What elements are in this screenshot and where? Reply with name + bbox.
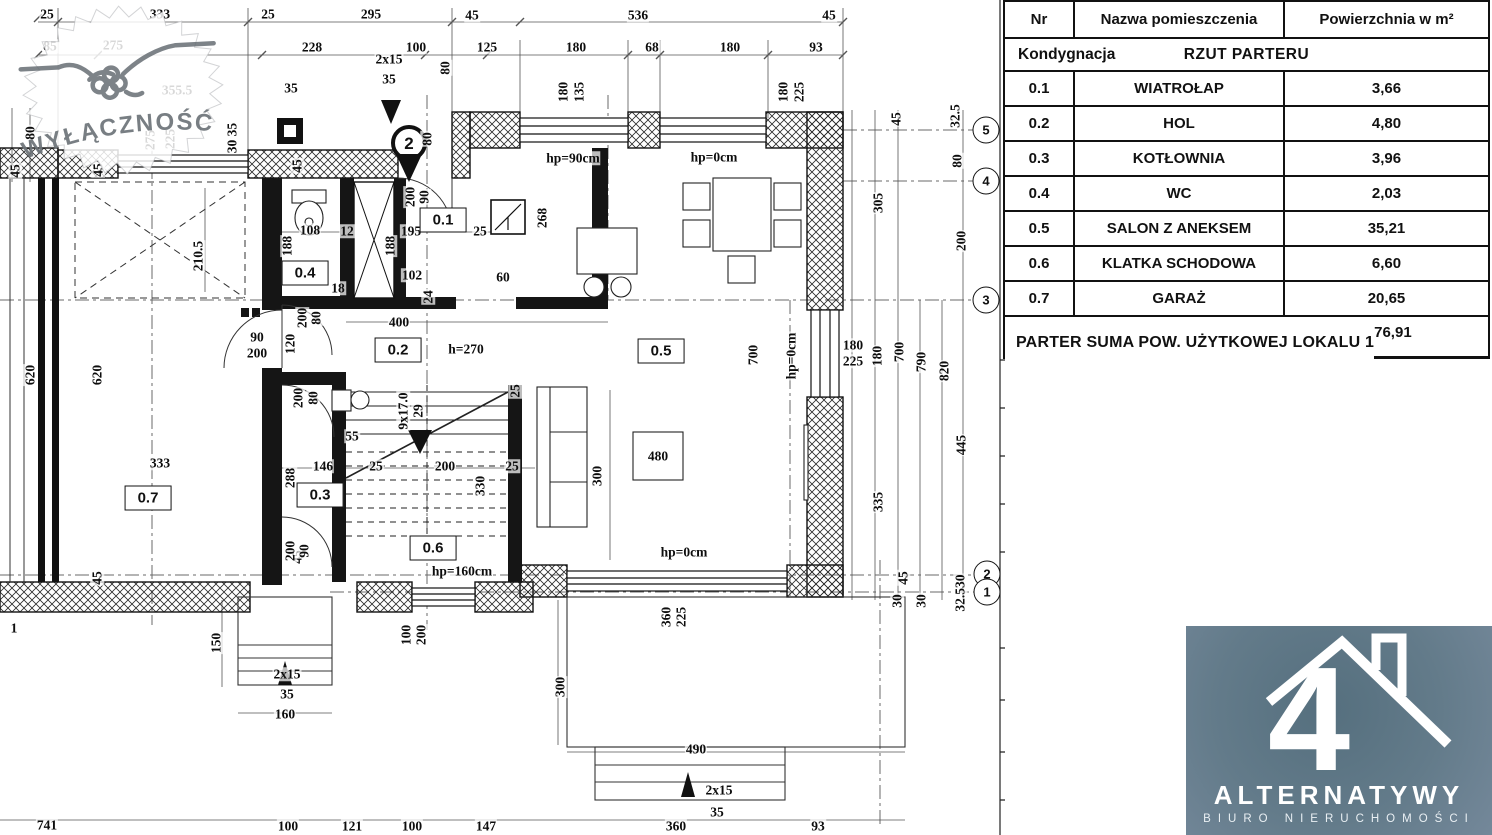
dimension-label: hp=0cm xyxy=(690,150,739,164)
dimension-label: 93 xyxy=(808,40,824,54)
dimension-label: 90 xyxy=(297,543,311,559)
dimension-label: 305 xyxy=(871,192,885,214)
logo-graphic: 4 xyxy=(1214,630,1464,782)
dimension-label: 333 xyxy=(149,456,171,470)
dimension-label: 295 xyxy=(360,7,382,21)
table-row: 0.1WIATROŁAP3,66 xyxy=(1005,72,1488,107)
sofa xyxy=(537,387,587,527)
dimension-label: 100 xyxy=(399,624,413,646)
dimension-label: 300 xyxy=(590,465,604,487)
dimension-label: 146 xyxy=(312,459,334,473)
dimension-label: 620 xyxy=(23,364,37,386)
dimension-label: 228 xyxy=(301,40,323,54)
dimension-label: 355.5 xyxy=(161,83,193,97)
dimension-label: 180 xyxy=(565,40,587,54)
dimension-label: 25 xyxy=(504,459,520,473)
cell-nr: 0.3 xyxy=(1005,142,1073,175)
dimension-label: 45 xyxy=(290,158,304,174)
dimension-label: 400 xyxy=(388,315,410,329)
dimension-label: 150 xyxy=(209,632,223,654)
brand-name: ALTERNATYWY xyxy=(1214,782,1464,809)
col-name: Nazwa pomieszczenia xyxy=(1073,2,1283,37)
dimension-label: 180 xyxy=(776,81,790,103)
storey-row: Kondygnacja RZUT PARTERU xyxy=(1005,39,1488,72)
dimension-label: 120 xyxy=(283,333,297,355)
dimension-label: 25 xyxy=(508,383,522,399)
grid-marker-1: 1 xyxy=(974,579,1001,606)
room-label-0.3: 0.3 xyxy=(297,483,344,508)
dimension-label: 93 xyxy=(810,819,826,833)
dimension-label: 45 xyxy=(889,111,903,127)
dimension-label: 300 xyxy=(553,676,567,698)
cell-nr: 0.2 xyxy=(1005,107,1073,140)
cell-area: 2,03 xyxy=(1283,177,1488,210)
dimension-label: 135 xyxy=(572,81,586,103)
dimension-label: 700 xyxy=(892,341,906,363)
garage-door-zone xyxy=(75,182,245,298)
room-area-table: Nr Nazwa pomieszczenia Powierzchnia w m²… xyxy=(1003,0,1490,359)
dimension-label: 700 xyxy=(746,344,760,366)
dimension-label: 108 xyxy=(299,223,321,237)
dimension-label: 80 xyxy=(23,125,37,141)
dimension-label: 100 xyxy=(277,819,299,833)
cell-area: 3,66 xyxy=(1283,72,1488,105)
dimension-label: 12 xyxy=(339,224,355,238)
dimension-label: 210.5 xyxy=(191,240,205,272)
dimension-label: 2x15 xyxy=(375,52,404,66)
dimension-label: 2x15 xyxy=(705,783,734,797)
dimension-label: 225 xyxy=(842,354,864,368)
dimension-label: 180 xyxy=(556,81,570,103)
dimension-label: 30 xyxy=(914,593,928,609)
dimension-label: hp=160cm xyxy=(431,564,493,578)
room-label-0.7: 0.7 xyxy=(125,486,172,511)
pin-number: 2 xyxy=(404,134,413,153)
dimension-label: 35 xyxy=(283,81,299,95)
room-label-0.5: 0.5 xyxy=(638,339,685,364)
dimension-label: hp=90cm xyxy=(545,151,600,165)
cell-area: 20,65 xyxy=(1283,282,1488,315)
agency-logo: 4 ALTERNATYWY BIURO NIERUCHOMOŚCI xyxy=(1186,626,1492,835)
dimension-label: 80 xyxy=(306,390,320,406)
dimension-label: 200 xyxy=(434,459,456,473)
dimension-label: 200 xyxy=(283,540,297,562)
dimension-label: 200 xyxy=(414,624,428,646)
dimension-label: 30 35 xyxy=(225,122,239,154)
col-nr: Nr xyxy=(1005,2,1073,37)
kitchen-island xyxy=(577,228,637,274)
dimension-label: 25 xyxy=(39,7,55,21)
dimension-label: 85 xyxy=(42,39,58,53)
cell-nr: 0.7 xyxy=(1005,282,1073,315)
dimension-label: 180 xyxy=(719,40,741,54)
cell-nr: 0.6 xyxy=(1005,247,1073,280)
dimension-label: 288 xyxy=(283,467,297,489)
dimension-label: 480 xyxy=(647,449,669,463)
dimension-label: 333 xyxy=(149,7,171,21)
dimension-label: 25 xyxy=(260,7,276,21)
grid-marker-5: 5 xyxy=(973,117,1000,144)
dimension-label: 55 xyxy=(344,429,360,443)
cell-name: WIATROŁAP xyxy=(1073,72,1283,105)
dimension-label: hp=0cm xyxy=(784,332,798,381)
area-table-body: 0.1WIATROŁAP3,660.2HOL4,800.3KOTŁOWNIA3,… xyxy=(1005,72,1488,317)
cell-nr: 0.1 xyxy=(1005,72,1073,105)
dimension-label: 29 xyxy=(411,403,425,419)
cell-name: WC xyxy=(1073,177,1283,210)
cell-name: GARAŻ xyxy=(1073,282,1283,315)
dimension-label: 200 xyxy=(246,346,268,360)
table-row: 0.5SALON Z ANEKSEM35,21 xyxy=(1005,212,1488,247)
dimension-label: 180 xyxy=(870,345,884,367)
dimension-label: 160 xyxy=(274,707,296,721)
table-row: 0.4WC2,03 xyxy=(1005,177,1488,212)
washer-icon xyxy=(332,390,351,411)
cell-area: 35,21 xyxy=(1283,212,1488,245)
dimension-label: 790 xyxy=(914,351,928,373)
summary-row: PARTER SUMA POW. UŻYTKOWEJ LOKALU 1 76,9… xyxy=(1005,317,1488,359)
dimension-label: 275 xyxy=(102,38,124,52)
chimney-block xyxy=(277,118,303,144)
dimension-label: 200 xyxy=(295,307,309,329)
dimension-label: 68 xyxy=(644,40,660,54)
floor-plan-sheet: 2 25333252954553645852752281001251806818… xyxy=(0,0,1005,835)
dimension-label: 100 xyxy=(405,40,427,54)
room-label-0.2: 0.2 xyxy=(375,338,422,363)
dimension-label: 147 xyxy=(475,819,497,833)
dimension-label: 45 xyxy=(896,570,910,586)
table-row: 0.2HOL4,80 xyxy=(1005,107,1488,142)
room-label-0.1: 0.1 xyxy=(420,208,467,233)
dimension-label: 35 xyxy=(381,72,397,86)
dimension-label: 335 xyxy=(871,491,885,513)
dimension-label: 32.5 xyxy=(948,103,962,129)
dimension-label: 90 xyxy=(417,189,431,205)
dimension-label: 100 xyxy=(401,819,423,833)
dimension-label: 45 xyxy=(91,162,105,178)
dimension-label: 45 xyxy=(8,163,22,179)
dimension-label: 80 xyxy=(420,131,434,147)
summary-value: 76,91 xyxy=(1374,324,1412,341)
dimension-label: 24 xyxy=(421,289,435,305)
dimension-label: 2x15 xyxy=(273,667,302,681)
room-label-0.4: 0.4 xyxy=(282,261,329,286)
room-label-0.6: 0.6 xyxy=(410,536,457,561)
dimension-label: 445 xyxy=(954,434,968,456)
dimension-label: 820 xyxy=(937,360,951,382)
cell-name: HOL xyxy=(1073,107,1283,140)
dimension-label: 225 xyxy=(163,128,177,150)
cell-area: 3,96 xyxy=(1283,142,1488,175)
dimension-label: 360 xyxy=(665,819,687,833)
dimension-label: 741 xyxy=(36,818,58,832)
fireplace-icon xyxy=(491,200,525,234)
dimension-label: 9x17.0 xyxy=(396,391,410,430)
dimension-label: 80 xyxy=(309,310,323,326)
cell-name: KLATKA SCHODOWA xyxy=(1073,247,1283,280)
table-row: 0.3KOTŁOWNIA3,96 xyxy=(1005,142,1488,177)
grid-marker-3: 3 xyxy=(973,287,1000,314)
dimension-label: 32.530 xyxy=(953,573,967,612)
dining-table xyxy=(713,178,771,251)
dimension-label: 125 xyxy=(476,40,498,54)
cell-nr: 0.4 xyxy=(1005,177,1073,210)
dimension-label: 268 xyxy=(535,207,549,229)
cell-name: KOTŁOWNIA xyxy=(1073,142,1283,175)
table-header: Nr Nazwa pomieszczenia Powierzchnia w m² xyxy=(1005,2,1488,39)
col-area: Powierzchnia w m² xyxy=(1283,2,1488,37)
dimension-label: 60 xyxy=(495,270,511,284)
dimension-label: 188 xyxy=(383,235,397,257)
dimension-label: 18 xyxy=(330,281,346,295)
dimension-label: 490 xyxy=(685,742,707,756)
dimension-label: 200 xyxy=(954,230,968,252)
dimension-label: 225 xyxy=(792,81,806,103)
cell-name: SALON Z ANEKSEM xyxy=(1073,212,1283,245)
dimension-label: 620 xyxy=(90,364,104,386)
dimension-label: 45 xyxy=(90,570,104,586)
dimension-label: 30 xyxy=(890,593,904,609)
dimension-label: 1 xyxy=(10,621,19,635)
cell-nr: 0.5 xyxy=(1005,212,1073,245)
dimension-label: 180 xyxy=(842,338,864,352)
dimension-label: 45 xyxy=(464,8,480,22)
table-row: 0.7GARAŻ20,65 xyxy=(1005,282,1488,317)
dimension-label: h=270 xyxy=(447,342,484,356)
grid-marker-4: 4 xyxy=(973,168,1000,195)
dimension-label: 200 xyxy=(403,186,417,208)
dimension-label: 25 xyxy=(368,459,384,473)
cell-area: 6,60 xyxy=(1283,247,1488,280)
logo-four: 4 xyxy=(1268,637,1350,782)
dimension-label: 25 xyxy=(472,224,488,238)
dimension-label: 200 xyxy=(291,387,305,409)
dimension-label: 35 xyxy=(279,687,295,701)
dimension-label: 121 xyxy=(341,819,363,833)
dimension-label: 45 xyxy=(821,8,837,22)
dimension-label: 80 xyxy=(950,153,964,169)
table-row: 0.6KLATKA SCHODOWA6,60 xyxy=(1005,247,1488,282)
dimension-label: 330 xyxy=(473,475,487,497)
dimension-label: 536 xyxy=(627,8,649,22)
tv-line xyxy=(804,425,808,500)
dimension-label: 188 xyxy=(280,235,294,257)
cell-area: 4,80 xyxy=(1283,107,1488,140)
brand-subtitle: BIURO NIERUCHOMOŚCI xyxy=(1203,813,1475,825)
summary-label: PARTER SUMA POW. UŻYTKOWEJ LOKALU 1 xyxy=(1016,334,1374,359)
dimension-label: 80 xyxy=(438,60,452,76)
dimension-label: 102 xyxy=(401,268,423,282)
dimension-label: 35 xyxy=(709,805,725,819)
dimension-label: 360 xyxy=(659,606,673,628)
dimension-label: 90 xyxy=(249,330,265,344)
storey-value: RZUT PARTERU xyxy=(1005,46,1488,64)
dimension-label: 275 xyxy=(143,129,157,151)
floor-plan-drawing: 2 xyxy=(0,0,1005,835)
dimension-label: 225 xyxy=(674,606,688,628)
dimension-label: hp=0cm xyxy=(660,545,709,559)
